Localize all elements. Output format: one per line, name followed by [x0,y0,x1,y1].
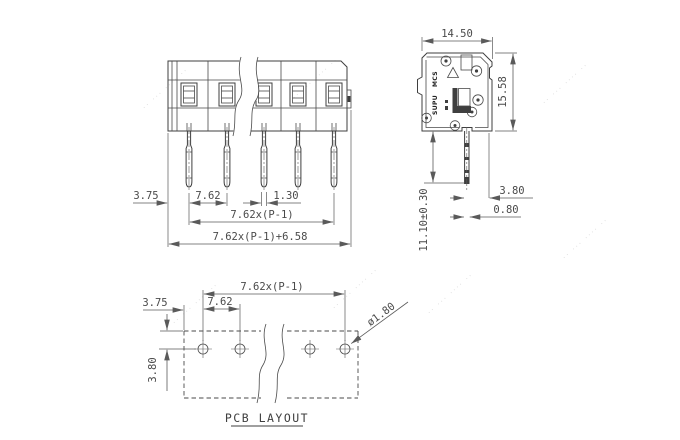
solder-pin [224,123,230,192]
side-rivets [422,56,483,130]
front-pins [186,123,337,192]
dim-width: 14.50 [441,28,473,40]
side-pin [464,127,469,191]
watermark-text: ·· ··· ···· ·· [426,271,475,317]
mounting-hole [301,340,319,358]
solder-pin [186,123,192,192]
dim-pin-width: 1.30 [273,190,298,202]
mounting-hole [231,340,249,358]
dim-row-offset: 3.80 [147,357,159,382]
dim-hole-pitch: 7.62 [207,296,232,308]
dim-pin-span: 7.62x(P-1) [230,209,293,221]
screw-window [181,83,197,106]
dim-hole-span: 7.62x(P-1) [240,281,303,293]
side-clamp-section [445,88,471,113]
watermark-text: ·· ··· ···· ·· [541,61,590,107]
technical-drawing: ·· ··· ···· ·· ·· ··· ···· ·· ·· ··· ···… [0,0,680,440]
dim-height: 15.58 [497,76,509,108]
dim-pitch: 7.62 [195,190,220,202]
watermark-text: ·· ··· ···· ·· [561,216,610,262]
pcb-caption: PCB LAYOUT [225,411,309,426]
pcb-holes [194,340,354,358]
watermark-text: ·· ··· ···· ·· [141,66,190,112]
watermark-text: ·· ··· ···· ·· [331,266,380,312]
dim-edge-to-pin: 3.75 [133,190,158,202]
pcb-outline-dashed [184,324,358,403]
side-dimensions: 14.50 15.58 11.10±0.30 3.80 0.80 [418,28,533,252]
dim-pin-to-face: 3.80 [499,185,524,197]
dim-hole-diameter: ø1.80 [365,300,398,328]
solder-pin [295,123,301,192]
screw-window [219,83,235,106]
dim-pin-thickness: 0.80 [493,204,518,216]
pcb-layout-caption: PCB LAYOUT [225,411,309,425]
brand-text-mcs: MCS [432,71,439,87]
mounting-hole [194,340,212,358]
solder-pin [331,123,337,192]
screw-window [326,83,342,106]
pcb-dimensions: 7.62x(P-1) 7.62 3.75 3.80 ø1.80 [142,281,408,391]
drawing-sheet: ·· ··· ···· ·· ·· ··· ···· ·· ·· ··· ···… [0,0,680,440]
side-view: MCS SUPU 14.50 15.58 11.10±0.30 3.80 [418,28,534,252]
warning-triangle-icon [448,68,459,78]
mounting-hole [336,340,354,358]
dim-pin-length: 11.10±0.30 [418,188,430,251]
front-screw-windows [181,83,342,106]
dim-overall-length: 7.62x(P-1)+6.58 [213,231,308,243]
brand-text-supu: SUPU [432,95,439,115]
dim-edge-to-hole: 3.75 [142,297,167,309]
front-break-lines [233,57,259,136]
pcb-layout-view: 7.62x(P-1) 7.62 3.75 3.80 ø1.80 PCB LAYO… [142,281,408,426]
solder-pin [261,123,267,192]
